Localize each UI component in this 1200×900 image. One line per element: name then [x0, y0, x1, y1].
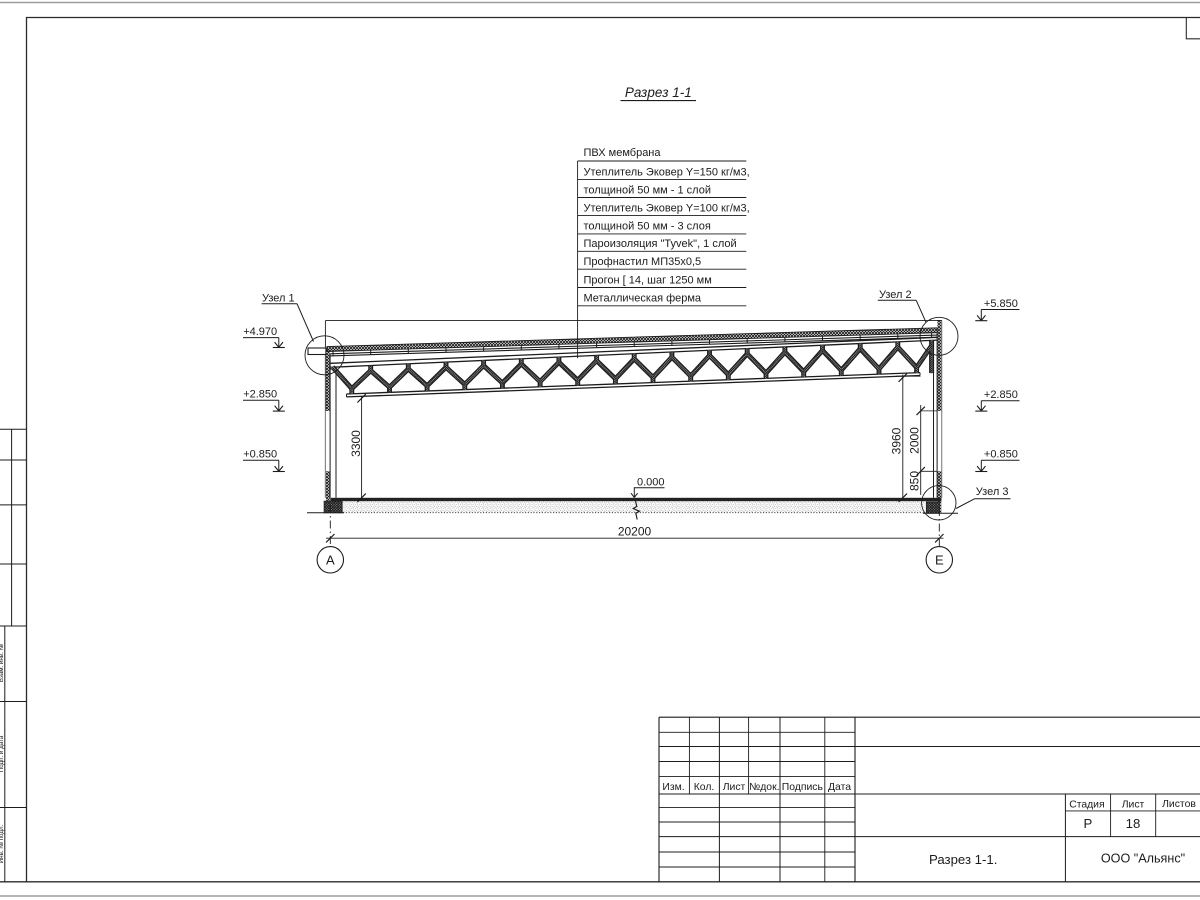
svg-text:Разрез 1-1.: Разрез 1-1. — [929, 852, 997, 867]
svg-text:Стадия: Стадия — [1069, 800, 1104, 811]
svg-text:+5.850: +5.850 — [984, 298, 1018, 310]
svg-text:Узел 3: Узел 3 — [976, 486, 1009, 498]
svg-text:Изм.: Изм. — [662, 782, 684, 793]
svg-text:А: А — [326, 553, 335, 568]
svg-text:толщиной 50 мм - 1 слой: толщиной 50 мм - 1 слой — [584, 184, 711, 196]
svg-text:Кол.: Кол. — [694, 782, 715, 793]
svg-text:+2.850: +2.850 — [984, 389, 1018, 401]
svg-text:3960: 3960 — [889, 427, 903, 454]
svg-text:№док.: №док. — [749, 782, 779, 793]
svg-text:+0.850: +0.850 — [243, 449, 277, 461]
svg-text:Листов: Листов — [1162, 799, 1196, 810]
svg-text:Лист: Лист — [1122, 800, 1145, 811]
svg-text:Е: Е — [935, 553, 944, 568]
svg-text:Взам. инв. №: Взам. инв. № — [0, 643, 5, 682]
svg-text:Металлическая ферма: Металлическая ферма — [584, 293, 702, 305]
svg-text:Узел 1: Узел 1 — [262, 292, 295, 304]
svg-text:20200: 20200 — [618, 524, 652, 538]
svg-text:Прогон [ 14, шаг 1250 мм: Прогон [ 14, шаг 1250 мм — [584, 274, 712, 286]
svg-text:18: 18 — [1126, 816, 1141, 831]
svg-text:Подп. и дата: Подп. и дата — [0, 735, 5, 772]
svg-text:+4.970: +4.970 — [243, 326, 277, 338]
svg-text:Пароизоляция "Tyvek", 1 слой: Пароизоляция "Tyvek", 1 слой — [584, 238, 737, 250]
svg-text:Разрез 1-1: Разрез 1-1 — [625, 85, 692, 100]
svg-text:Утеплитель Эковер Y=100 кг/м3,: Утеплитель Эковер Y=100 кг/м3, — [584, 203, 750, 215]
svg-text:Профнастил МП35х0,5: Профнастил МП35х0,5 — [584, 256, 702, 268]
svg-text:Р: Р — [1084, 816, 1093, 831]
svg-text:Лист: Лист — [723, 782, 746, 793]
svg-text:Инв. № подл.: Инв. № подл. — [0, 824, 5, 863]
svg-text:+2.850: +2.850 — [243, 389, 277, 401]
svg-text:850: 850 — [907, 471, 921, 491]
svg-text:толщиной 50 мм - 3 слоя: толщиной 50 мм - 3 слоя — [584, 221, 711, 233]
svg-text:ООО "Альянс": ООО "Альянс" — [1101, 851, 1185, 865]
svg-text:2000: 2000 — [907, 427, 921, 454]
svg-text:ПВХ мембрана: ПВХ мембрана — [584, 147, 662, 159]
svg-text:+0.850: +0.850 — [984, 449, 1018, 461]
svg-text:Узел 2: Узел 2 — [879, 289, 912, 301]
svg-text:0.000: 0.000 — [637, 477, 665, 489]
svg-text:3300: 3300 — [349, 430, 363, 457]
svg-text:Утеплитель Эковер Y=150 кг/м3,: Утеплитель Эковер Y=150 кг/м3, — [584, 166, 750, 178]
svg-text:Подпись: Подпись — [782, 782, 823, 793]
svg-text:Дата: Дата — [828, 782, 851, 793]
